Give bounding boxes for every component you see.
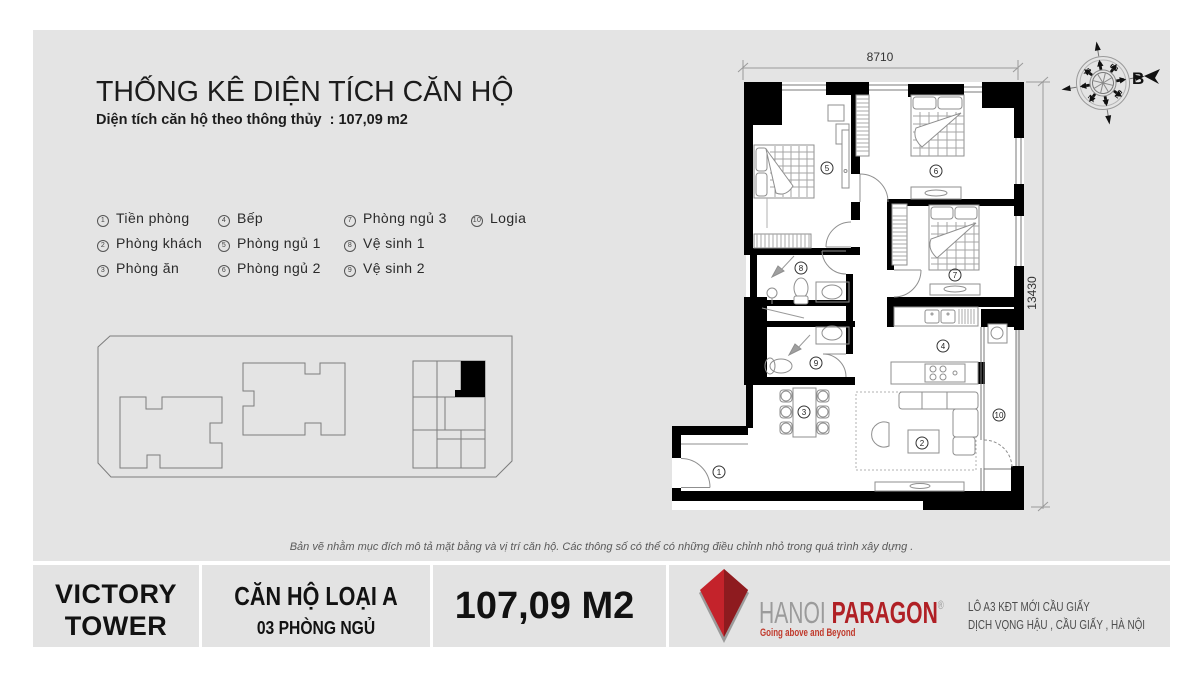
svg-text:10: 10 [995, 411, 1004, 420]
svg-text:8710: 8710 [867, 50, 894, 64]
svg-text:B: B [1132, 69, 1144, 88]
svg-text:3: 3 [802, 408, 807, 417]
svg-text:6: 6 [934, 167, 939, 176]
svg-text:2: 2 [920, 439, 925, 448]
svg-text:8: 8 [799, 264, 804, 273]
svg-text:9: 9 [814, 359, 819, 368]
svg-text:1: 1 [717, 468, 722, 477]
svg-text:N: N [1103, 97, 1108, 104]
svg-text:13430: 13430 [1025, 276, 1039, 310]
svg-text:4: 4 [941, 342, 946, 351]
svg-text:5: 5 [825, 164, 830, 173]
svg-text:7: 7 [953, 271, 958, 280]
